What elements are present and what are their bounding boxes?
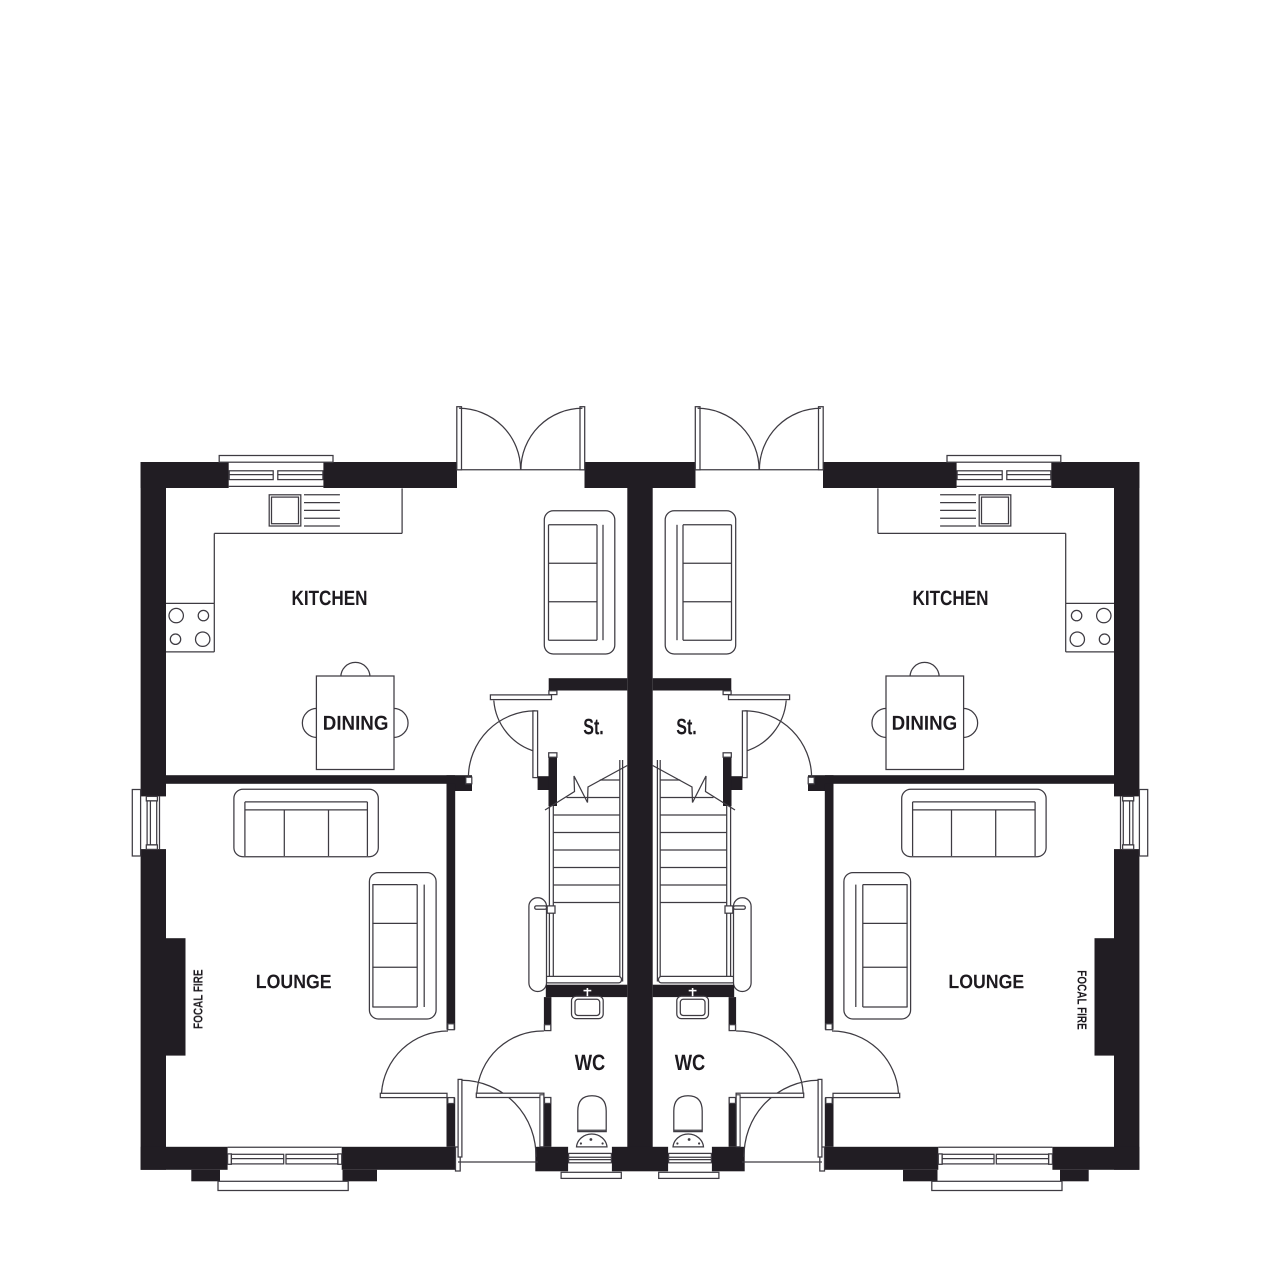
svg-text:DINING: DINING [323,713,389,735]
svg-text:DINING: DINING [892,713,958,735]
svg-text:WC: WC [675,1050,706,1075]
svg-text:LOUNGE: LOUNGE [256,971,332,993]
svg-text:St.: St. [583,714,604,739]
svg-text:FOCAL FIRE: FOCAL FIRE [191,969,206,1029]
svg-text:WC: WC [575,1050,606,1075]
svg-text:KITCHEN: KITCHEN [291,587,367,610]
svg-text:St.: St. [676,714,697,739]
svg-text:LOUNGE: LOUNGE [948,971,1024,993]
svg-text:KITCHEN: KITCHEN [912,587,988,610]
svg-text:FOCAL FIRE: FOCAL FIRE [1075,970,1090,1030]
